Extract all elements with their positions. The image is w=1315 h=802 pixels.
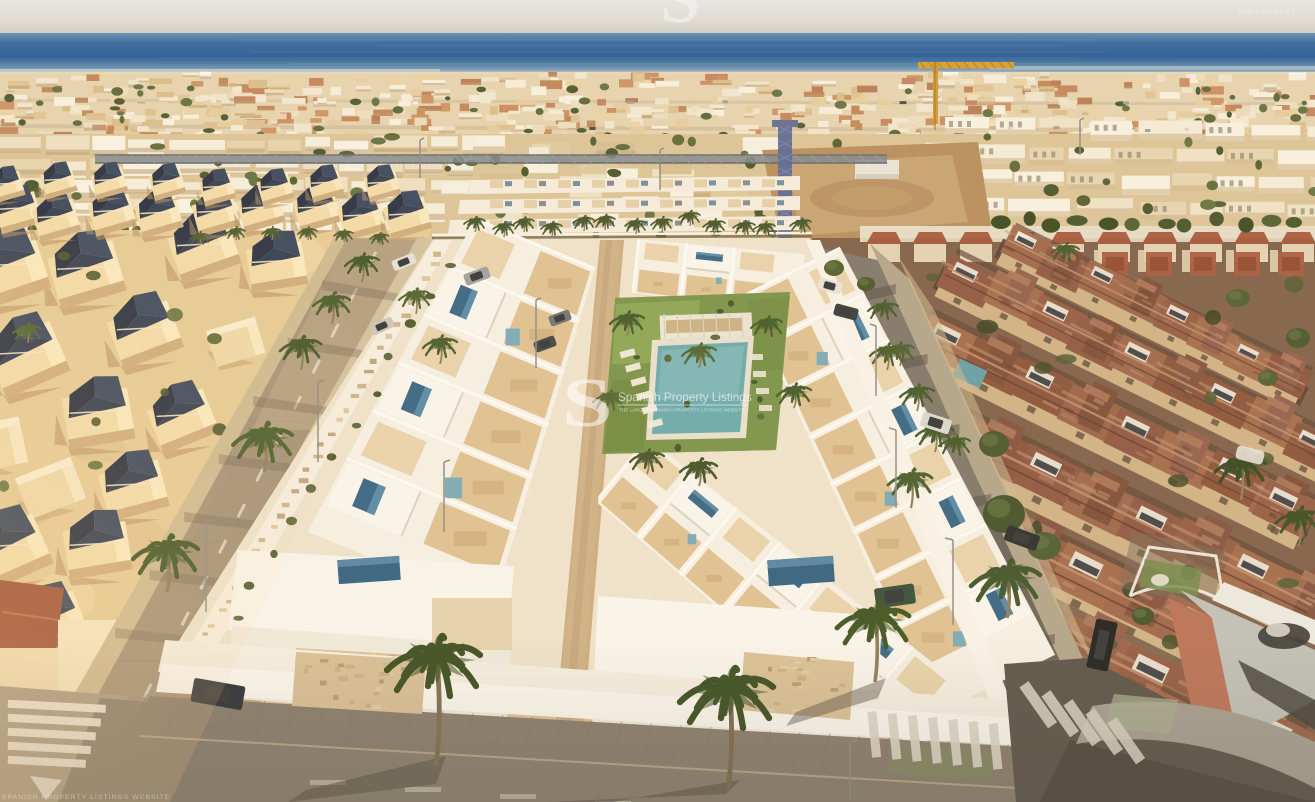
svg-text:S: S	[660, 0, 700, 38]
svg-text:Spanish Property Listings: Spanish Property Listings	[618, 390, 752, 404]
svg-text:THE LARGEST SPANISH PROPERTY L: THE LARGEST SPANISH PROPERTY LISTINGS WE…	[619, 408, 744, 413]
svg-text:S: S	[562, 364, 613, 442]
svg-text:SPANISH PROPERTY LISTINGS WEBS: SPANISH PROPERTY LISTINGS WEBSITE	[2, 794, 170, 801]
svg-text:THE LARGEST: THE LARGEST	[1237, 9, 1296, 16]
